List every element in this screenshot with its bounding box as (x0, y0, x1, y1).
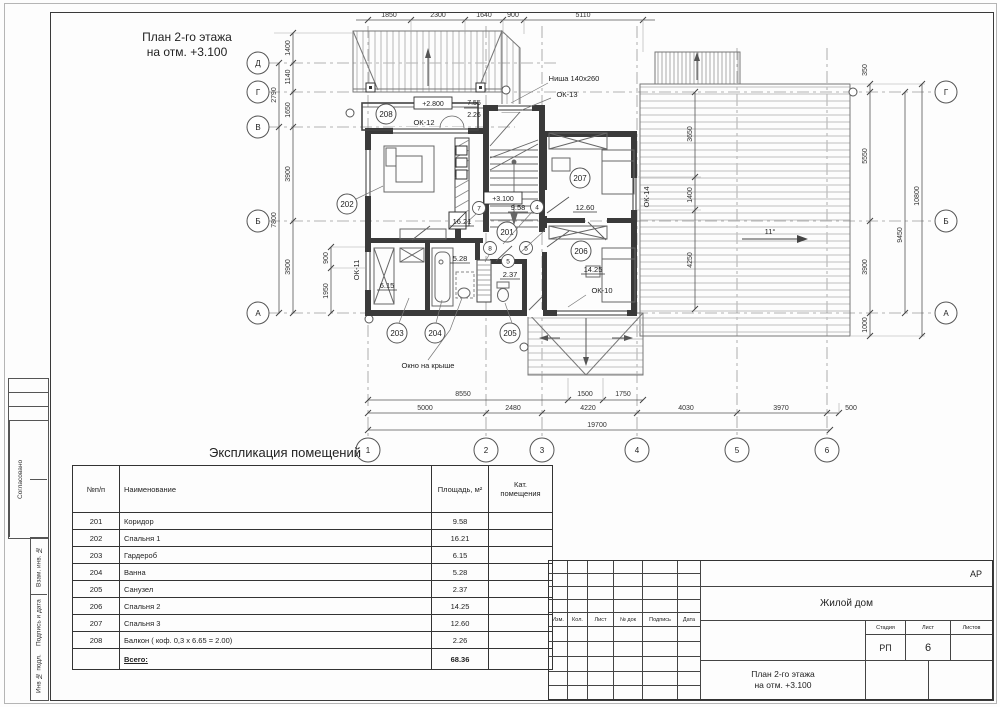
area-207: 12.60 (576, 203, 595, 212)
tb-cell (614, 600, 643, 613)
detail-number: 8 (488, 245, 492, 252)
tb-cell (568, 657, 588, 672)
balcony-area-bottom: 2.26 (467, 112, 481, 119)
balcony-area-top: 7.55 (467, 100, 481, 107)
tb-cell (588, 642, 614, 657)
dim-label: 5000 (417, 405, 433, 412)
tb-cell (549, 672, 568, 686)
dim-label: 500 (845, 405, 857, 412)
cell-area: 9.58 (432, 513, 489, 530)
tb-cell (549, 642, 568, 657)
axis-label: Б (943, 217, 948, 226)
tb-cell (588, 627, 614, 642)
axis-label: В (255, 123, 260, 132)
axis-label: Г (256, 88, 261, 97)
cell-cat (489, 581, 553, 598)
cell-cat (489, 547, 553, 564)
room-number: 208 (379, 110, 393, 119)
room-number: 201 (500, 228, 514, 237)
cell-empty (73, 649, 120, 670)
tb-cell (643, 587, 678, 600)
main-roof (640, 52, 857, 336)
dim-label: 9450 (897, 227, 904, 243)
table-row: 207Спальня 312.60 (73, 615, 553, 632)
cell-num: 201 (73, 513, 120, 530)
tb-cell (549, 587, 568, 600)
table-row: 203Гардероб6.15 (73, 547, 553, 564)
cell-name: Санузел (120, 581, 432, 598)
tb-col-kol: Кол. (568, 613, 588, 627)
cell-name: Ванна (120, 564, 432, 581)
title-block: Изм. Кол. Лист № док Подпись Дата (548, 560, 993, 700)
tb-col-list: Лист (588, 613, 614, 627)
dim-label: 3900 (862, 259, 869, 275)
dim-label: 2790 (271, 87, 278, 103)
room-number: 203 (390, 329, 404, 338)
room-number: 205 (503, 329, 517, 338)
tb-cell (549, 627, 568, 642)
tb-cell (678, 686, 701, 699)
cell-num: 208 (73, 632, 120, 649)
tb-cell (549, 600, 568, 613)
tb-cell (614, 672, 643, 686)
dim-label: 4250 (687, 252, 694, 268)
tb-cell (568, 574, 588, 587)
dim-label: 1640 (476, 12, 492, 19)
stage-label: Стадия (866, 621, 906, 635)
cell-cat (489, 564, 553, 581)
tb-cell (678, 587, 701, 600)
dim-label: 5550 (862, 148, 869, 164)
doc-code: АР (701, 561, 992, 587)
tb-cell (588, 587, 614, 600)
tb-cell (549, 686, 568, 699)
tb-cell (588, 600, 614, 613)
detail-number: 5 (524, 245, 528, 252)
tb-cell (614, 642, 643, 657)
dim-label: 10800 (914, 186, 921, 206)
axis-label: Г (944, 88, 949, 97)
level-floor: +3.100 (492, 196, 514, 203)
cell-num: 206 (73, 598, 120, 615)
dim-label: 1400 (687, 187, 694, 203)
dim-label: 3650 (687, 126, 694, 142)
window-tag-ok14: ОК-14 (642, 186, 651, 207)
table-row: 201Коридор9.58 (73, 513, 553, 530)
tb-cell (614, 657, 643, 672)
tb-cell (588, 686, 614, 699)
cell-cat (489, 598, 553, 615)
tb-cell (614, 574, 643, 587)
tb-cell (588, 561, 614, 574)
tb-col-date: Дата (678, 613, 701, 627)
dim-label: 3970 (773, 405, 789, 412)
drawing-name-line1: План 2-го этажа (751, 669, 815, 680)
axis-label: 3 (540, 446, 545, 455)
cell-name: Коридор (120, 513, 432, 530)
dim-label: 900 (323, 252, 330, 264)
axis-label: Д (255, 59, 261, 68)
inv-orig-label: Инв № подл. (31, 650, 47, 698)
dim-label: 900 (507, 12, 519, 19)
detail-number: 7 (477, 205, 481, 212)
area-201: 9.58 (511, 203, 526, 212)
cell-num: 203 (73, 547, 120, 564)
cell-cat (489, 513, 553, 530)
tb-col-doc: № док (614, 613, 643, 627)
table-row: 205Санузел2.37 (73, 581, 553, 598)
cell-name: Балкон ( коф. 0,3 х 6.65 = 2.00) (120, 632, 432, 649)
tb-cell (643, 657, 678, 672)
dims-left: 1400 1140 1650 3900 3900 2790 7800 900 1… (271, 30, 365, 316)
tb-cell (678, 574, 701, 587)
cell-area: 5.28 (432, 564, 489, 581)
axis-label: 4 (635, 446, 640, 455)
area-206: 14.25 (584, 265, 603, 274)
tb-cell (678, 561, 701, 574)
tb-cell (614, 627, 643, 642)
drawing-sheet: План 2-го этажа на отм. +3.100 Согласова… (0, 0, 1000, 707)
tb-cell (643, 642, 678, 657)
dim-label: 1400 (285, 40, 292, 56)
tb-cell (678, 600, 701, 613)
cell-area: 2.37 (432, 581, 489, 598)
tb-cell (643, 672, 678, 686)
tb-cell (929, 661, 992, 699)
cell-area: 6.15 (432, 547, 489, 564)
cell-name: Спальня 2 (120, 598, 432, 615)
cell-num: 207 (73, 615, 120, 632)
dim-label: 4030 (678, 405, 694, 412)
tb-cell (588, 657, 614, 672)
window-tag-ok11: ОК-11 (352, 260, 361, 281)
cell-name: Спальня 1 (120, 530, 432, 547)
dim-label: 1850 (381, 12, 397, 19)
tb-cell (549, 574, 568, 587)
table-total-row: Всего: 68.36 (73, 649, 553, 670)
sheet-label: Лист (906, 621, 951, 635)
table-row: 206Спальня 214.25 (73, 598, 553, 615)
cell-empty (489, 649, 553, 670)
table-row: 208Балкон ( коф. 0,3 х 6.65 = 2.00)2.26 (73, 632, 553, 649)
header-cat: Кат. помещения (489, 466, 553, 513)
header-num: №п/п (73, 466, 120, 513)
detail-number: 4 (535, 204, 539, 211)
tb-col-sign: Подпись (643, 613, 678, 627)
tb-cell (643, 627, 678, 642)
area-203: 6.15 (380, 281, 395, 290)
room-number: 206 (574, 247, 588, 256)
dim-label: 2480 (505, 405, 521, 412)
cell-area: 12.60 (432, 615, 489, 632)
tb-cell (588, 574, 614, 587)
room-explication-table: №п/п Наименование Площадь, м² Кат. помещ… (72, 465, 553, 670)
tb-cell (643, 686, 678, 699)
tb-cell (568, 600, 588, 613)
window-tag-ok13: ОК-13 (556, 90, 577, 99)
tb-cell (701, 621, 866, 661)
tb-cell (866, 661, 929, 699)
drawing-name-line2: на отм. +3.100 (754, 680, 811, 691)
niche-note: Ниша 140x260 (549, 74, 600, 83)
table-row: 204Ванна5.28 (73, 564, 553, 581)
table-row: 202Спальня 116.21 (73, 530, 553, 547)
cell-name: Гардероб (120, 547, 432, 564)
header-area: Площадь, м² (432, 466, 489, 513)
dim-label: 5110 (575, 12, 590, 19)
cell-cat (489, 632, 553, 649)
sign-date-label: Подпись и дата (31, 594, 47, 650)
roof-window-note: Окно на крыше (402, 361, 455, 370)
stage-value: РП (866, 635, 906, 661)
tb-cell (568, 587, 588, 600)
total-value: 68.36 (432, 649, 489, 670)
tb-cell (568, 686, 588, 699)
dim-label: 1750 (615, 391, 631, 398)
tb-cell (678, 627, 701, 642)
tb-cell (568, 642, 588, 657)
tb-cell (678, 642, 701, 657)
dim-label: 1650 (285, 102, 292, 118)
area-204: 5.28 (453, 254, 468, 263)
dim-label: 8550 (455, 391, 471, 398)
roof-slope-label: 11° (765, 227, 776, 236)
axis-label: 2 (484, 446, 489, 455)
tb-cell (549, 561, 568, 574)
tb-cell (568, 561, 588, 574)
level-balcony: +2.800 (422, 101, 444, 108)
project-name: Жилой дом (701, 587, 992, 621)
dim-label: 1140 (285, 69, 292, 84)
cell-cat (489, 530, 553, 547)
dim-label: 1500 (577, 391, 593, 398)
drawing-name: План 2-го этажа на отм. +3.100 (701, 661, 866, 699)
axis-label: 6 (825, 446, 830, 455)
cell-area: 16.21 (432, 530, 489, 547)
cell-area: 2.26 (432, 632, 489, 649)
dim-label: 2300 (430, 12, 446, 19)
dim-label: 1000 (862, 317, 869, 333)
room-number: 207 (573, 174, 587, 183)
tb-cell (549, 657, 568, 672)
tb-cell (678, 657, 701, 672)
tb-cell (643, 600, 678, 613)
floor-plan-drawing: 1850 2300 1640 900 5110 1400 1140 1650 3… (0, 0, 1000, 470)
dim-label: 1950 (323, 283, 330, 299)
dim-label: 4220 (580, 405, 596, 412)
inventory-strip: Взам. инв. № Подпись и дата Инв № подл. (30, 537, 49, 701)
dim-label: 19700 (587, 422, 607, 429)
room-number: 202 (340, 200, 354, 209)
dim-label: 3900 (285, 259, 292, 275)
area-202: 16.21 (453, 217, 472, 226)
tb-cell (568, 672, 588, 686)
axis-label: Б (255, 217, 260, 226)
tb-cell (678, 672, 701, 686)
axis-label: А (255, 309, 261, 318)
furniture (374, 133, 635, 306)
tb-col-izm: Изм. (549, 613, 568, 627)
axis-label: А (943, 309, 949, 318)
tb-cell (614, 561, 643, 574)
cell-area: 14.25 (432, 598, 489, 615)
tb-cell (643, 561, 678, 574)
tb-cell (588, 672, 614, 686)
tb-cell (614, 587, 643, 600)
axis-label: 5 (735, 446, 740, 455)
cell-num: 204 (73, 564, 120, 581)
table-header-row: №п/п Наименование Площадь, м² Кат. помещ… (73, 466, 553, 513)
sheets-value (951, 635, 992, 661)
area-205: 2.37 (503, 270, 518, 279)
dim-label: 350 (862, 64, 869, 76)
sheet-number: 6 (906, 635, 951, 661)
exterior-walls (365, 105, 637, 316)
dim-label: 3900 (285, 166, 292, 182)
window-tag-ok12: ОК-12 (413, 118, 434, 127)
sheets-label: Листов (951, 621, 992, 635)
table-title: Экспликация помещений (200, 445, 370, 460)
replace-inv-label: Взам. инв. № (31, 538, 47, 594)
cell-name: Спальня 3 (120, 615, 432, 632)
room-number: 204 (428, 329, 442, 338)
tb-cell (643, 574, 678, 587)
dims-bottom: 8550 1500 1750 5000 2480 4220 4030 3970 … (365, 378, 857, 433)
total-label: Всего: (120, 649, 432, 670)
header-name: Наименование (120, 466, 432, 513)
cell-cat (489, 615, 553, 632)
tb-cell (614, 686, 643, 699)
detail-number: 5 (506, 258, 510, 265)
cell-num: 205 (73, 581, 120, 598)
cell-num: 202 (73, 530, 120, 547)
window-tag-ok10: ОК-10 (591, 286, 612, 295)
dim-label: 7800 (271, 212, 278, 228)
tb-cell (568, 627, 588, 642)
